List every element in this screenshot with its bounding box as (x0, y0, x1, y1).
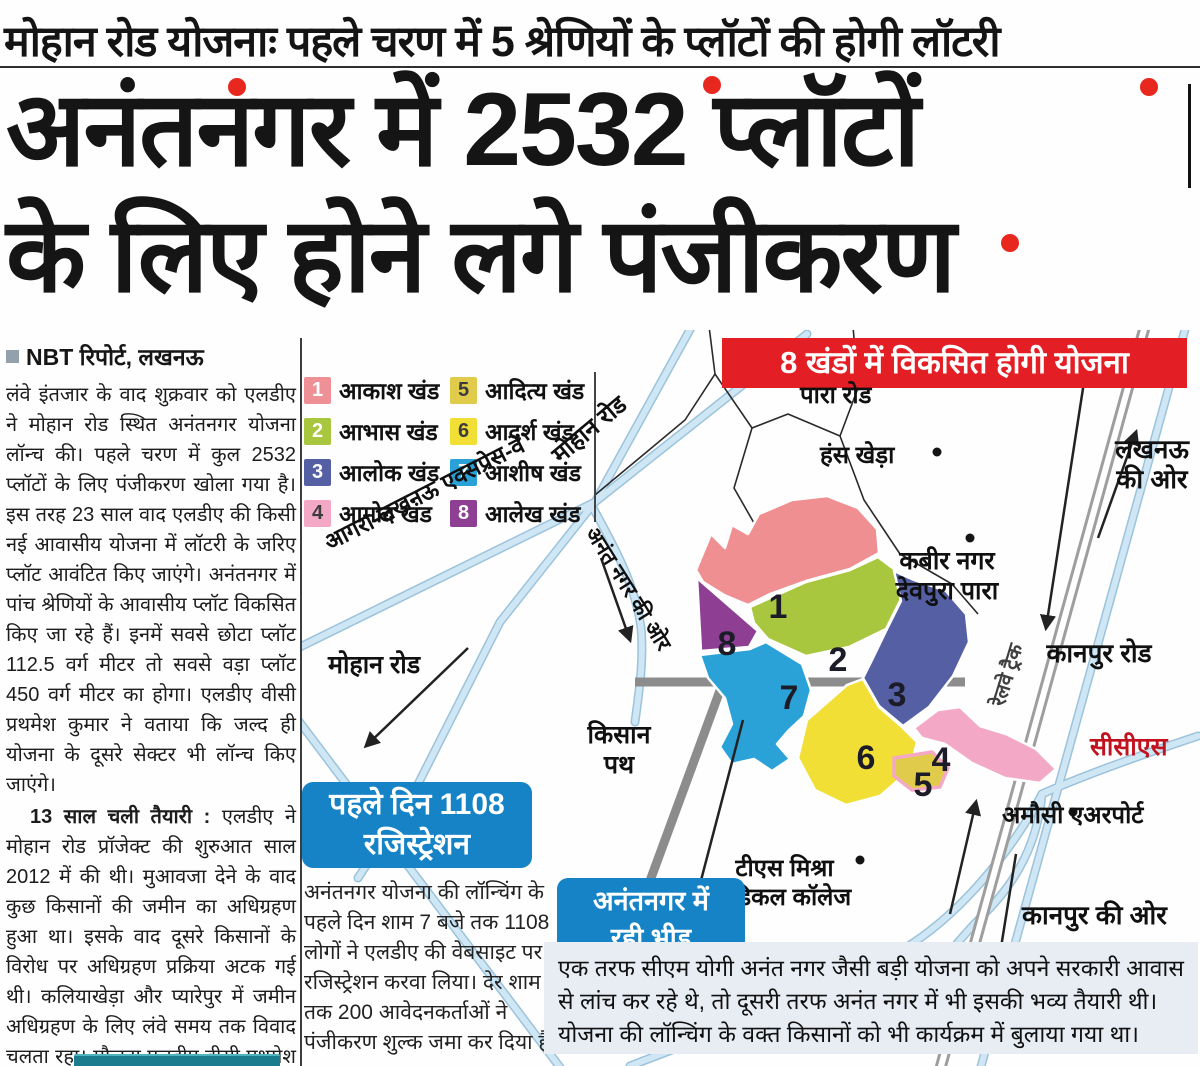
registration-body-text: अनंतनगर योजना की लॉन्चिंग के पहले दिन शा… (304, 878, 559, 1058)
article-paragraph-1: लंवे इंतजार के वाद शुक्रवार को एलडीए ने … (6, 380, 296, 800)
legend-label-1: आकाश खंड (339, 374, 439, 406)
section-number-1: 1 (769, 588, 788, 626)
map-label-hans-kheda: हंस खेड़ा (820, 442, 894, 469)
registration-count-box: पहले दिन 1108 रजिस्ट्रेशन (302, 782, 532, 868)
legend-swatch-5: 5 (450, 377, 477, 404)
section-number-8: 8 (718, 625, 737, 663)
section-number-6: 6 (857, 739, 876, 777)
section-number-3: 3 (888, 676, 907, 714)
registration-box-line1: पहले दिन 1108 (302, 785, 532, 825)
crowd-body-text: एक तरफ सीएम योगी अनंत नगर जैसी बड़ी योजन… (544, 942, 1198, 1054)
legend-swatch-3: 3 (304, 459, 331, 486)
kicker-underline (0, 66, 1200, 68)
legend-item-8: 8आलेख खंड (450, 497, 600, 529)
legend-label-5: आदित्य खंड (485, 374, 584, 406)
legend-swatch-2: 2 (304, 418, 331, 445)
map-label-amausi-airport: अमौसी एअरपोर्ट (1002, 802, 1143, 829)
article-paragraph-2: 13 साल चली तैयारी : एलडीए ने मोहान रोड प… (6, 802, 296, 1066)
section-number-5: 5 (914, 766, 933, 804)
map-title-badge: 8 खंडों में विकसित होगी योजना (722, 338, 1187, 388)
section-number-7: 7 (780, 679, 799, 717)
legend-item-2: 2आभास खंड (304, 415, 450, 447)
article-paragraph-2-lead: 13 साल चली तैयारी : (30, 806, 210, 828)
scheme-map: 1 8 2 3 7 6 4 5 8 खंडों में विकसित होगी … (302, 330, 1200, 1066)
map-label-ccs: सीसीएस (1090, 734, 1167, 761)
byline-text: NBT रिपोर्ट, लखनऊ (26, 340, 204, 372)
registration-box-line2: रजिस्ट्रेशन (302, 825, 532, 865)
byline: NBT रिपोर्ट, लखनऊ (6, 340, 296, 372)
article-column: NBT रिपोर्ट, लखनऊ लंवे इंतजार के वाद शुक… (6, 340, 296, 1066)
legend-label-8: आलेख खंड (485, 497, 580, 529)
legend-swatch-6: 6 (450, 418, 477, 445)
newspaper-clipping: मोहान रोड योजनाः पहले चरण में 5 श्रेणियो… (0, 0, 1200, 1066)
headline-red-dot (703, 76, 721, 94)
cropped-photo-edge (74, 1054, 280, 1066)
map-label-kanpur-road: कानपुर रोड (1044, 638, 1154, 669)
column-rule-right (1188, 84, 1191, 188)
legend-swatch-1: 1 (304, 377, 331, 404)
legend-swatch-4: 4 (304, 500, 331, 527)
headline-red-dot (1140, 78, 1158, 96)
legend-swatch-8: 8 (450, 500, 477, 527)
kicker-headline: मोहान रोड योजनाः पहले चरण में 5 श्रेणियो… (4, 10, 1200, 69)
map-label-mohan-road-left: मोहान रोड (328, 652, 420, 679)
map-label-kanpur-toward: कानपुर की ओर (1022, 902, 1167, 929)
crowd-box-line1: अनंतनगर में (557, 883, 745, 920)
map-label-kabir-nagar: कबीर नगर देवपुरा पारा (872, 546, 1022, 606)
section-number-2: 2 (829, 641, 848, 679)
legend-item-5: 5आदित्य खंड (450, 374, 600, 406)
map-label-kisan-path: किसान पथ (574, 720, 664, 780)
legend-item-1: 1आकाश खंड (304, 374, 450, 406)
headline-red-dot (1001, 234, 1019, 252)
map-label-para-road: पारा रोड (800, 382, 871, 409)
map-label-lucknow-toward: लखनऊ की ओर (1102, 434, 1200, 494)
main-headline-line1: अनंतनगर में 2532 प्लॉटों (6, 74, 1196, 186)
legend-label-2: आभास खंड (339, 415, 438, 447)
hans-kheda-dot (933, 448, 942, 457)
article-paragraph-2-text: एलडीए ने मोहान रोड प्रॉजेक्ट की शुरुआत स… (6, 806, 296, 1066)
headline-red-dot (228, 78, 246, 96)
kabir-nagar-dot (966, 534, 975, 543)
main-headline-line2: के लिए होने लगे पंजीकरण (6, 200, 1196, 312)
byline-square-icon (6, 350, 19, 363)
legend-divider-rule (594, 372, 596, 522)
section-number-4: 4 (932, 741, 951, 779)
